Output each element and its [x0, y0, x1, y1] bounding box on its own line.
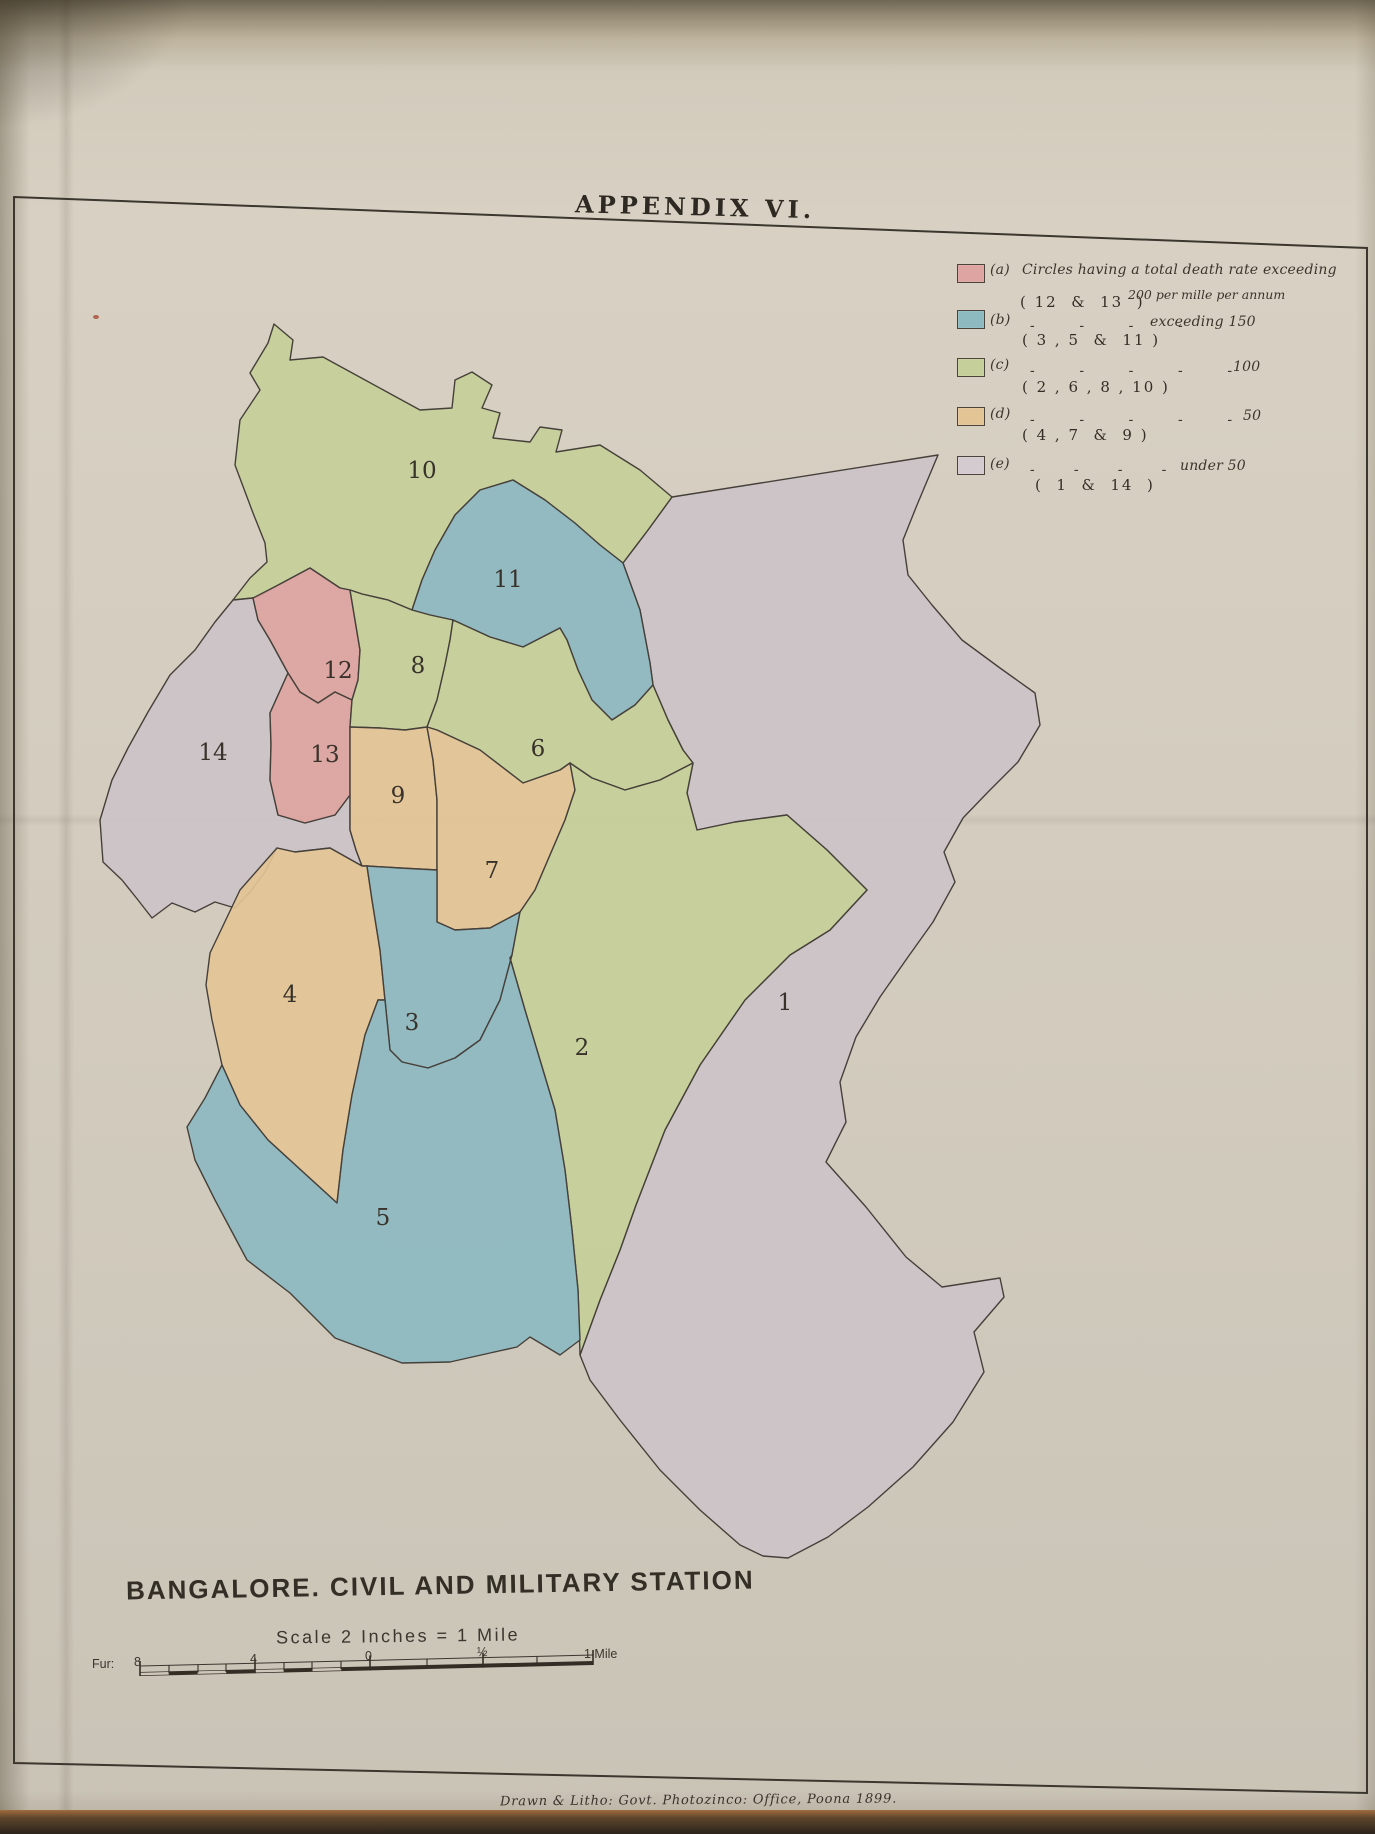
region-8-label: 8 — [411, 653, 426, 679]
region-6-label: 6 — [531, 736, 546, 762]
region-2-label: 2 — [575, 1035, 590, 1061]
region-4-label: 4 — [283, 982, 298, 1008]
legend-circles-a: ( 12 & 13 ) — [1020, 293, 1145, 311]
legend-key-e: (e) — [990, 456, 1010, 472]
region-9-label: 9 — [391, 783, 406, 809]
scale-label-Fur: Fur: — [92, 1657, 114, 1671]
legend-ditto-c: - - - - - — [1030, 363, 1233, 379]
legend-value-b: exceeding 150 — [1150, 314, 1256, 330]
scale-checker — [198, 1672, 227, 1673]
legend-circles-e: ( 1 & 14 ) — [1035, 476, 1155, 494]
legend-key-a: (a) — [990, 262, 1010, 278]
legend-key-b: (b) — [990, 312, 1011, 328]
ink-fleck — [93, 315, 99, 319]
region-14-label: 14 — [198, 740, 227, 766]
legend-circles-c: ( 2 , 6 , 8 , 10 ) — [1022, 378, 1170, 396]
legend-swatch-d — [957, 407, 985, 426]
region-13-label: 13 — [310, 742, 339, 768]
legend-key-c: (c) — [990, 357, 1009, 373]
scale-caption: Scale 2 Inches = 1 Mile — [276, 1625, 520, 1649]
attribution-line: Drawn & Litho: Govt. Photozinco: Office,… — [500, 1792, 880, 1810]
scale-checker — [255, 1671, 284, 1672]
region-10-label: 10 — [407, 458, 436, 484]
scale-label-1Mile: 1 Mile — [584, 1647, 617, 1661]
legend-circles-d: ( 4 , 7 & 9 ) — [1022, 426, 1149, 444]
legend-swatch-c — [957, 358, 985, 377]
region-3-label: 3 — [405, 1010, 420, 1036]
legend-text-a: Circles having a total death rate exceed… — [1022, 262, 1337, 278]
scale-label-0: 0 — [365, 1649, 372, 1663]
legend-value-d: 50 — [1243, 408, 1261, 424]
book-edge — [0, 1810, 1375, 1834]
region-1-label: 1 — [778, 990, 793, 1016]
legend-swatch-a — [957, 264, 985, 283]
region-7-label: 7 — [485, 858, 500, 884]
scale-label-½: ½ — [477, 1645, 488, 1659]
scale-checker — [313, 1669, 342, 1670]
book-page-photo: { "page": { "title": "APPENDIX VI.", "ma… — [0, 0, 1375, 1834]
legend-value-c: 100 — [1233, 359, 1260, 375]
scale-checker — [140, 1673, 169, 1674]
scale-label-4: 4 — [250, 1652, 257, 1666]
legend-text2-a: 200 per mille per annum — [1128, 287, 1285, 302]
legend-value-e: under 50 — [1180, 458, 1246, 474]
legend-swatch-e — [957, 456, 985, 475]
region-5-label: 5 — [376, 1205, 391, 1231]
legend-circles-b: ( 3 , 5 & 11 ) — [1022, 331, 1160, 349]
scale-label-8: 8 — [134, 1655, 141, 1669]
region-11-label: 11 — [493, 567, 522, 593]
legend-swatch-b — [957, 310, 985, 329]
legend-key-d: (d) — [990, 406, 1011, 422]
region-12-label: 12 — [323, 658, 352, 684]
